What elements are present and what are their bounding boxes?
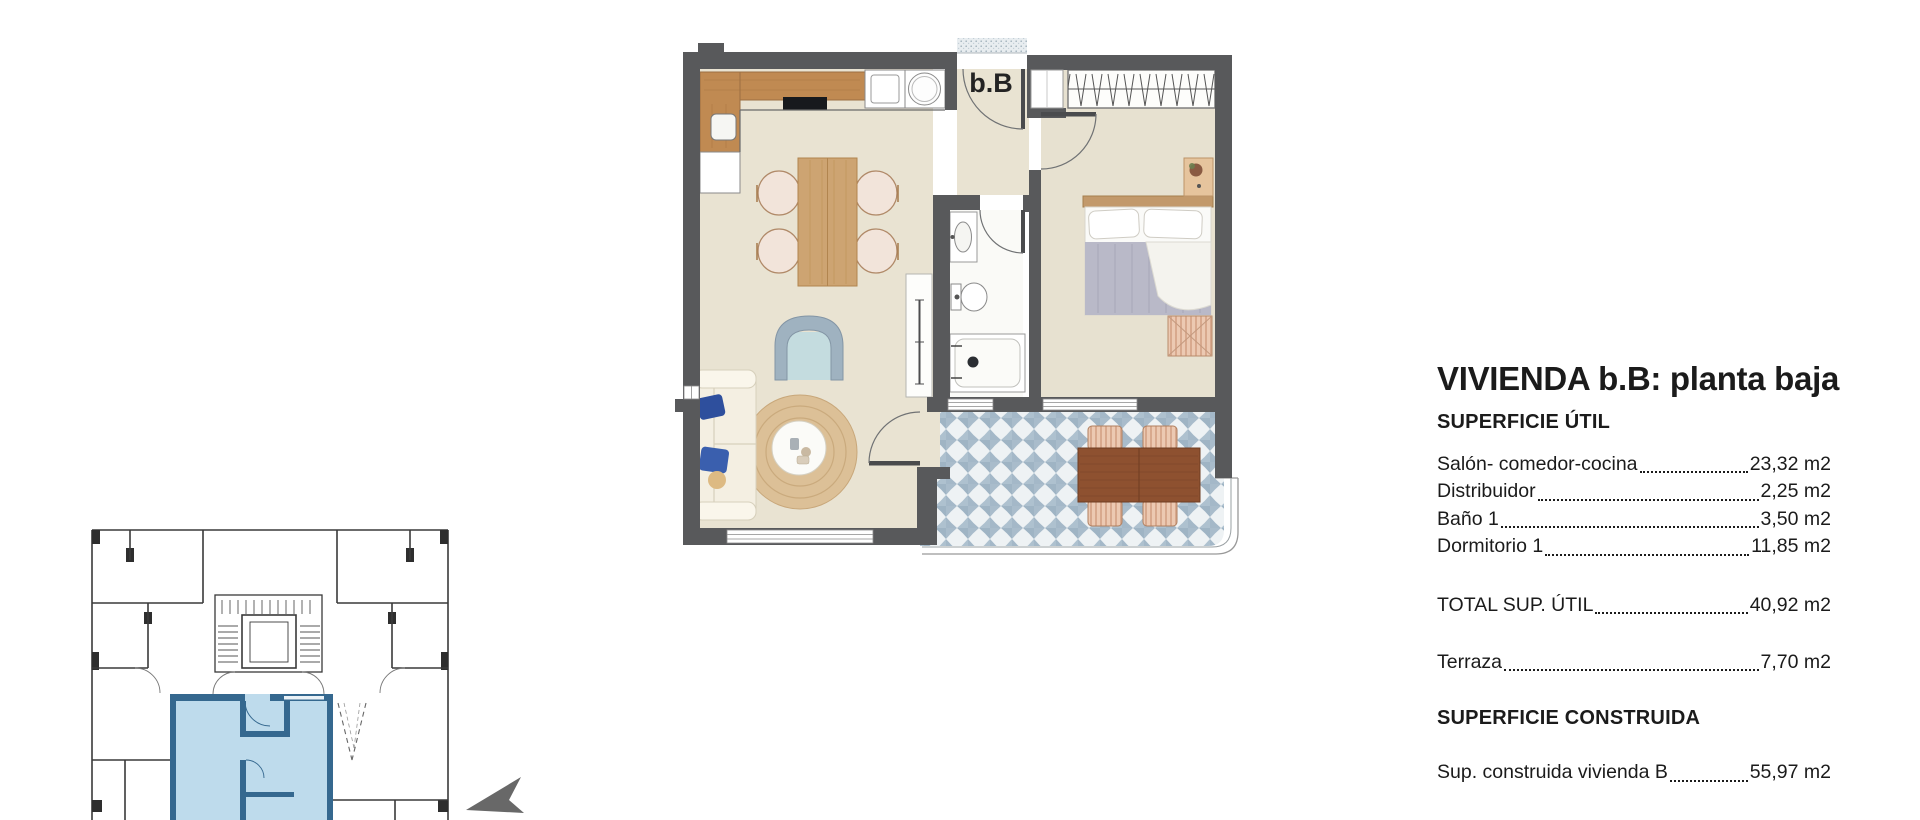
section-title-util: SUPERFICIE ÚTIL (1437, 411, 1831, 434)
area-label: TOTAL SUP. ÚTIL (1437, 592, 1593, 619)
dot-leader (1545, 554, 1749, 556)
area-value: 40,92 m2 (1750, 592, 1831, 619)
coffee-table (772, 421, 826, 475)
dot-leader (1501, 526, 1759, 528)
key-plan-highlight-unit (170, 694, 333, 820)
second-sink (871, 75, 899, 103)
section-title-construida: SUPERFICIE CONSTRUIDA (1437, 707, 1831, 730)
terrace-chair (1088, 426, 1122, 450)
sofa (694, 370, 756, 520)
area-value: 11,85 m2 (1751, 533, 1831, 560)
dining-chair (855, 229, 898, 273)
headboard-shelf (1083, 196, 1213, 207)
area-value: 55,97 m2 (1750, 759, 1831, 786)
dining-chair (855, 171, 898, 215)
cooktop (783, 97, 827, 110)
nightstand (1184, 158, 1213, 196)
dot-leader (1538, 499, 1759, 501)
window (948, 399, 993, 410)
dot-leader (1670, 780, 1748, 782)
apartment-plan: b.B (675, 38, 1238, 554)
area-row: Distribuidor 2,25 m2 (1437, 478, 1831, 505)
page-title: VIVIENDA b.B: planta baja (1437, 360, 1831, 398)
area-row: Baño 1 3,50 m2 (1437, 506, 1831, 533)
area-label: Dormitorio 1 (1437, 533, 1543, 560)
area-summary-panel: VIVIENDA b.B: planta baja SUPERFICIE ÚTI… (1437, 360, 1831, 787)
area-label: Terraza (1437, 649, 1502, 676)
entrance-porch (957, 38, 1027, 53)
north-arrow-icon (466, 777, 524, 813)
area-row: Salón- comedor-cocina 23,32 m2 (1437, 451, 1831, 478)
armchair (775, 316, 843, 380)
unit-label: b.B (969, 68, 1013, 98)
area-value: 23,32 m2 (1750, 451, 1831, 478)
dot-leader (1504, 669, 1759, 671)
shower-drain (968, 357, 979, 368)
area-label: Baño 1 (1437, 506, 1499, 533)
key-plan (92, 530, 524, 820)
dining-chair (757, 171, 800, 215)
terrace-chair (1088, 500, 1122, 526)
area-label: Salón- comedor-cocina (1437, 451, 1638, 478)
window (1043, 399, 1137, 410)
dot-leader (1595, 612, 1747, 614)
plan-sheet: b.B (0, 0, 1920, 820)
area-value: 7,70 m2 (1761, 649, 1831, 676)
pillow (1088, 209, 1139, 240)
area-label: Distribuidor (1437, 478, 1536, 505)
kitchen-sink (711, 114, 736, 140)
total-util-row: TOTAL SUP. ÚTIL 40,92 m2 (1437, 592, 1831, 619)
terrace-chair (1143, 426, 1177, 450)
wardrobe (1068, 70, 1215, 108)
area-row: Dormitorio 1 11,85 m2 (1437, 533, 1831, 560)
chimney-notch (698, 43, 724, 52)
construida-row: Sup. construida vivienda B 55,97 m2 (1437, 759, 1831, 786)
washing-machine-icon (909, 73, 941, 105)
bathtub (950, 334, 1025, 392)
storage-trunk (1168, 316, 1212, 356)
terrace-chair (1143, 500, 1177, 526)
sofa-pillow (698, 446, 729, 474)
console-table (906, 274, 932, 397)
window (684, 386, 699, 399)
area-label: Sup. construida vivienda B (1437, 759, 1668, 786)
round-pillow (708, 471, 726, 489)
util-rows: Salón- comedor-cocina 23,32 m2 Distribui… (1437, 451, 1831, 561)
area-value: 3,50 m2 (1761, 506, 1831, 533)
window (727, 530, 873, 543)
dot-leader (1640, 471, 1748, 473)
terrace-row: Terraza 7,70 m2 (1437, 649, 1831, 676)
toilet (951, 283, 987, 311)
stair-core (215, 595, 322, 672)
entry-closet (1031, 70, 1063, 108)
terrace-threshold (920, 412, 940, 467)
dining-chair (757, 229, 800, 273)
kitchen-cabinet (700, 152, 740, 193)
pillow (1144, 209, 1203, 239)
area-value: 2,25 m2 (1761, 478, 1831, 505)
bed (1085, 207, 1211, 315)
